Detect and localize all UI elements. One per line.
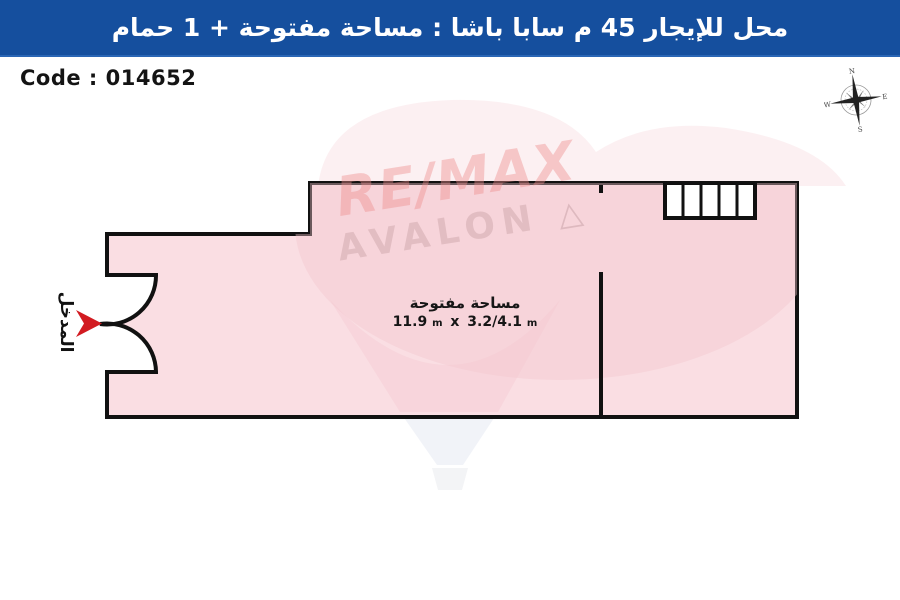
dim-times: x xyxy=(450,314,459,330)
dim-value-2: 3.2/4.1 xyxy=(467,314,522,330)
room-label: مساحة مفتوحة xyxy=(365,294,565,312)
dim-unit-2: m xyxy=(527,318,537,329)
entrance-arrow-icon xyxy=(76,310,102,337)
dim-unit-1: m xyxy=(432,318,442,329)
dim-value-1: 11.9 xyxy=(393,314,428,330)
stairs xyxy=(665,183,755,218)
entrance-label: المدخل xyxy=(54,279,76,365)
room-dimensions: 11.9 m x 3.2/4.1 m xyxy=(355,314,575,330)
